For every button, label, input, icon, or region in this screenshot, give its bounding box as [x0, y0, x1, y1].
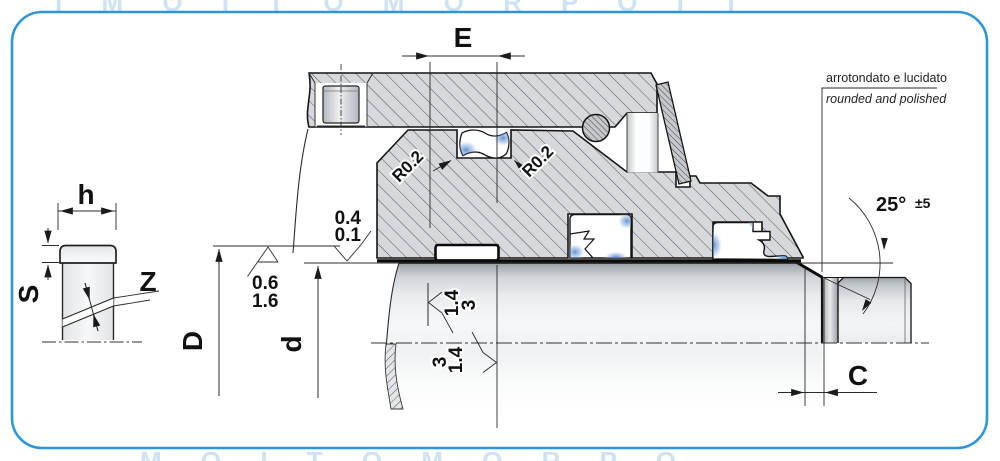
bearing-strip	[436, 245, 499, 261]
bore-surface-band	[627, 113, 658, 173]
dim-h-label: h	[77, 179, 94, 210]
dim-c-label: C	[848, 360, 868, 391]
watermark-top: I M O I T O M O R P O I T	[55, 0, 755, 17]
dim-d-big-label: D	[177, 331, 208, 351]
note-english: rounded and polished	[826, 92, 947, 106]
finish-rod-lower-value2: 1.4	[446, 346, 467, 373]
rod-seal	[564, 212, 637, 263]
finish-lower-value2: 1.6	[252, 291, 278, 312]
o-ring	[583, 115, 610, 142]
angle-tolerance: ±5	[915, 195, 931, 211]
ring-cap-profile	[60, 246, 116, 264]
dim-e-label: E	[454, 22, 473, 53]
drawing-canvas: I M O I T O M O R P O I T M O I T O M O …	[0, 0, 1000, 461]
dim-z-label: Z	[139, 266, 156, 297]
technical-drawing: I M O I T O M O R P O I T M O I T O M O …	[0, 0, 1000, 461]
finish-rod-upper-value2: 3	[459, 300, 480, 311]
note-italian: arrotondato e lucidato	[826, 71, 947, 85]
rod	[386, 263, 822, 410]
rod-end-section	[838, 278, 911, 344]
angle-value: 25°	[876, 194, 906, 216]
dim-d-small-label: d	[276, 335, 307, 352]
finish-upper-value2: 0.1	[335, 225, 362, 246]
dim-s-label: S	[13, 285, 44, 304]
